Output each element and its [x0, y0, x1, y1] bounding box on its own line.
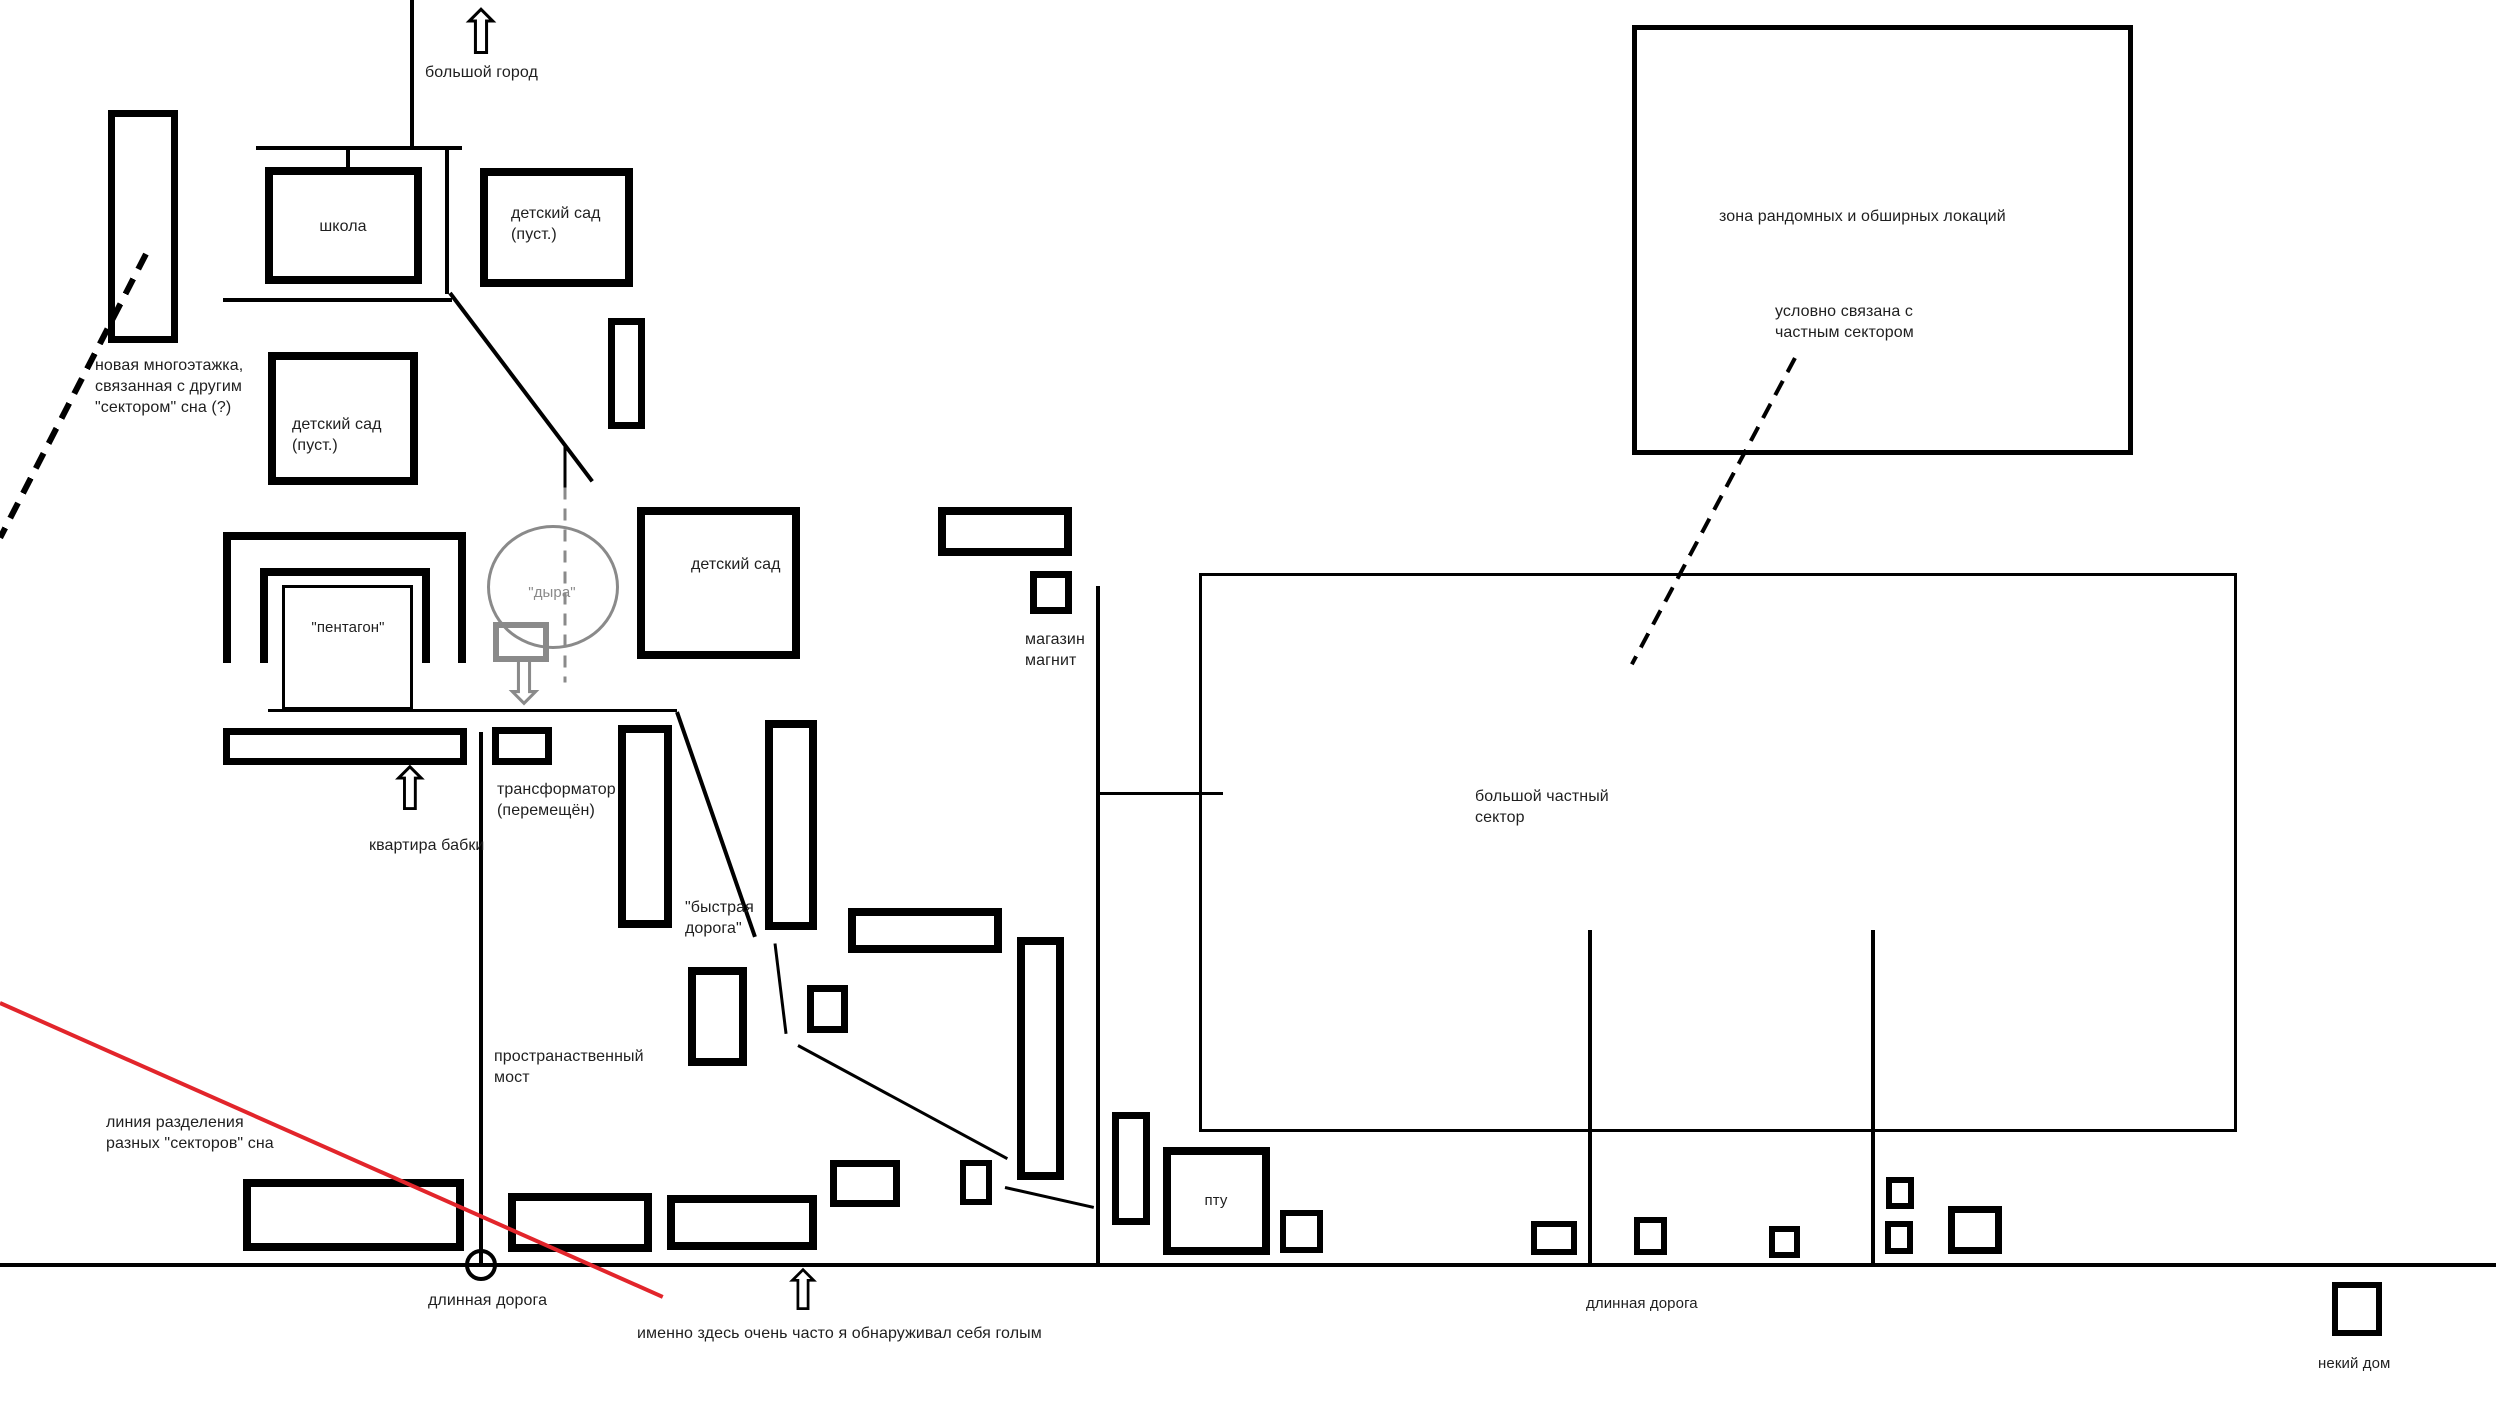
- zone-random-locations: [1632, 25, 2133, 455]
- building-sector-sq-5: [1885, 1221, 1913, 1254]
- road-school-bottom: [223, 298, 452, 302]
- building-magnit-wide: [938, 507, 1072, 556]
- building-small-vertical-1: [608, 318, 645, 429]
- grandma-arrow-icon: ⇧: [385, 760, 435, 820]
- fast-road-segment-2: [774, 943, 788, 1033]
- big-city-arrow-icon: ⇧: [455, 2, 507, 64]
- sector-inner-vertical-2: [1871, 930, 1875, 1265]
- building-tall-mid-2: [765, 720, 817, 930]
- label-kindergarten-1: детский сад (пуст.): [511, 203, 601, 245]
- label-long-road-2: длинная дорога: [1586, 1294, 1698, 1314]
- label-pentagon: "пентагон": [311, 618, 384, 638]
- label-school: школа: [319, 216, 366, 237]
- building-small-left-ptu: [960, 1160, 992, 1205]
- building-bottom-row-3: [667, 1195, 817, 1250]
- label-private-sector: большой частный сектор: [1475, 786, 1609, 828]
- label-magnit-store: магазин магнит: [1025, 629, 1085, 671]
- label-kindergarten-3: детский сад: [691, 554, 781, 575]
- building-tall-mid-3: [1017, 937, 1064, 1180]
- building-sector-sq-6: [1948, 1206, 2002, 1254]
- label-space-bridge: пространаственный мост: [494, 1046, 644, 1088]
- building-sector-sq-2: [1634, 1217, 1667, 1255]
- building-vrect-ptu: [1112, 1112, 1150, 1225]
- building-sector-sq-3: [1769, 1226, 1800, 1258]
- naked-spot-arrow-icon: ⇧: [780, 1264, 827, 1320]
- label-transformer: трансформатор (перемещён): [497, 779, 616, 821]
- building-sector-sq-4: [1886, 1177, 1914, 1209]
- building-bottom-row-2: [508, 1193, 652, 1252]
- building-mid-bar: [848, 908, 1002, 953]
- sector-inner-vertical-1: [1588, 930, 1592, 1265]
- dream-map-canvas: ⇧⇧⇧⇩большой городновая многоэтажка, связ…: [0, 0, 2496, 1428]
- label-big-city: большой город: [425, 62, 538, 83]
- road-bridge-vertical: [479, 732, 483, 1265]
- road-big-city-vertical: [410, 0, 414, 148]
- hole-stub: [564, 444, 567, 487]
- road-magnit-vertical: [1096, 586, 1100, 1265]
- building-vrect-below: [688, 967, 747, 1066]
- building-some-house: [2332, 1282, 2382, 1336]
- label-hole: "дыра": [528, 583, 575, 603]
- hole-arrow-icon: ⇩: [498, 652, 550, 714]
- building-square-right-ptu: [1280, 1210, 1323, 1253]
- crossroads-circle: [465, 1249, 497, 1281]
- label-divide-line: линия разделения разных "секторов" сна: [106, 1112, 274, 1154]
- building-bottom-row-1: [243, 1179, 464, 1251]
- zone-private-sector: [1199, 573, 2237, 1132]
- label-ptu: пту: [1205, 1191, 1228, 1211]
- building-magnit-square: [1030, 571, 1072, 614]
- building-kindergarten-3: [637, 507, 800, 659]
- label-naked-note: именно здесь очень часто я обнаруживал с…: [637, 1323, 1042, 1344]
- label-fast-road: "быстрая дорога": [685, 897, 754, 939]
- road-school-right: [445, 150, 449, 294]
- label-some-house: некий дом: [2318, 1354, 2390, 1374]
- label-random-zone: зона рандомных и обширных локаций: [1719, 206, 2006, 227]
- building-tall-mid-1: [618, 725, 672, 928]
- fast-road-segment-3: [797, 1044, 1007, 1160]
- building-bottom-row-4: [830, 1160, 900, 1207]
- pentagon-core: [282, 585, 413, 710]
- school-connector: [346, 148, 350, 168]
- label-kindergarten-2: детский сад (пуст.): [292, 414, 382, 456]
- road-school-top: [256, 146, 462, 150]
- building-transformer: [492, 727, 552, 765]
- road-school-diagonal: [448, 292, 593, 482]
- label-linked-note: условно связана с частным сектором: [1775, 301, 1914, 343]
- building-sector-sq-1: [1531, 1221, 1577, 1255]
- label-grandma-flat: квартира бабки: [369, 835, 484, 856]
- label-long-road-1: длинная дорога: [428, 1290, 547, 1311]
- road-long-horizontal: [0, 1263, 2496, 1267]
- label-new-highrise: новая многоэтажка, связанная с другим "с…: [95, 355, 243, 418]
- building-small-square-mid: [807, 985, 848, 1033]
- fast-road-segment-4: [1005, 1186, 1095, 1209]
- road-pentagon-bottom: [268, 709, 677, 712]
- road-sector-entry: [1098, 792, 1223, 795]
